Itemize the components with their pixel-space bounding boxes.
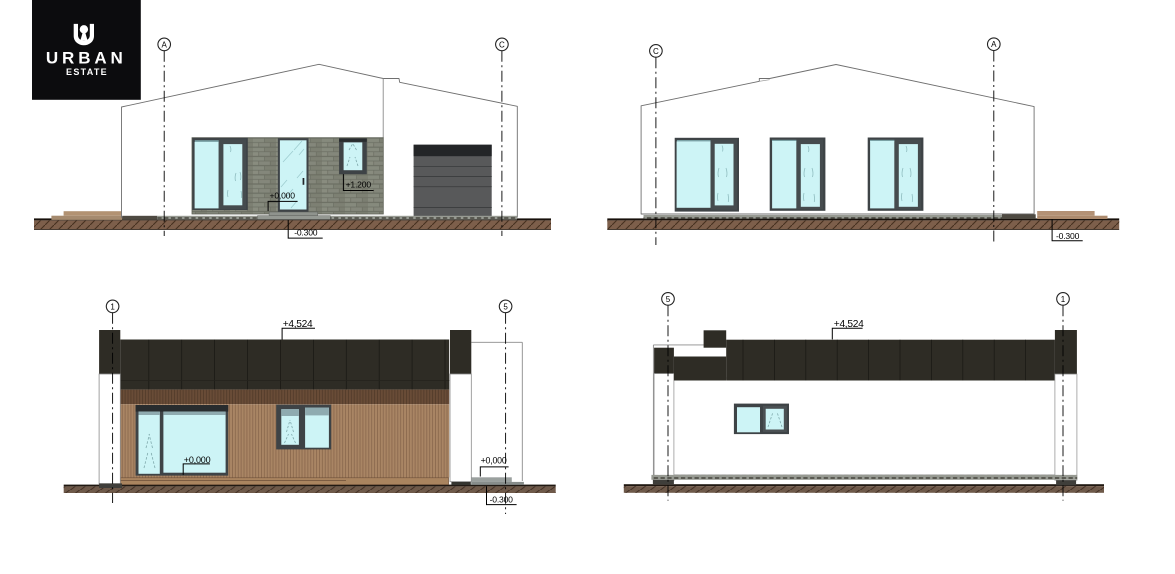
svg-text:+1.200: +1.200: [346, 180, 372, 190]
svg-text:C: C: [499, 40, 505, 49]
svg-text:1: 1: [110, 302, 115, 311]
svg-text:-0.300: -0.300: [1056, 231, 1080, 241]
svg-text:A: A: [162, 40, 168, 49]
svg-text:A: A: [991, 40, 997, 49]
svg-text:5: 5: [503, 302, 508, 311]
svg-text:URBAN: URBAN: [46, 48, 127, 67]
svg-text:5: 5: [666, 295, 671, 304]
svg-text:-0.300: -0.300: [294, 227, 318, 237]
svg-text:1: 1: [1061, 295, 1066, 304]
svg-text:+0,000: +0,000: [481, 456, 507, 466]
svg-text:ESTATE: ESTATE: [66, 67, 108, 77]
svg-text:C: C: [653, 47, 659, 56]
svg-text:-0.300: -0.300: [490, 494, 514, 504]
svg-text:+0,000: +0,000: [270, 191, 296, 201]
